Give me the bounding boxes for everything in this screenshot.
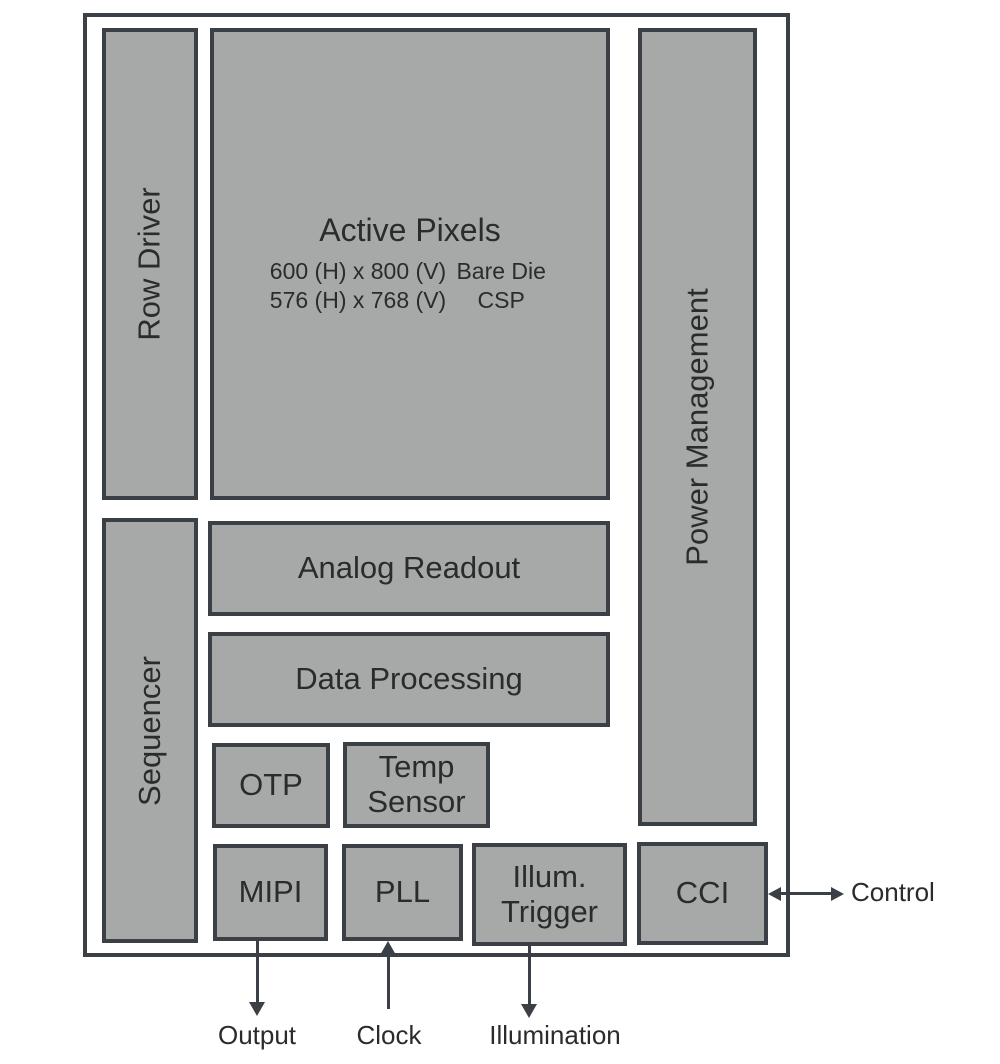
bare-die-resolution: 600 (H) x 800 (V) [270, 257, 446, 286]
illumination-trigger-label-line2: Trigger [501, 895, 598, 930]
active-pixels-title: Active Pixels [319, 213, 500, 248]
bare-die-package-label: Bare Die [452, 257, 550, 286]
control-arrowhead-left-icon [768, 887, 781, 901]
row-driver-block: Row Driver [102, 28, 198, 500]
temp-sensor-label-line1: Temp [379, 750, 455, 785]
cci-label: CCI [676, 876, 729, 911]
active-pixels-resolution-csp: 576 (H) x 768 (V) CSP [270, 286, 550, 315]
otp-block: OTP [212, 743, 330, 828]
sequencer-label: Sequencer [132, 656, 168, 806]
data-processing-label: Data Processing [295, 662, 522, 697]
output-arrow [256, 941, 259, 1003]
illumination-arrow [528, 946, 531, 1005]
output-signal-label: Output [218, 1021, 296, 1051]
temp-sensor-label-line2: Sensor [367, 785, 465, 820]
mipi-block: MIPI [213, 844, 328, 941]
power-management-label: Power Management [680, 288, 716, 565]
data-processing-block: Data Processing [208, 632, 610, 727]
control-signal-label: Control [851, 878, 935, 908]
active-pixels-block: Active Pixels 600 (H) x 800 (V) Bare Die… [210, 28, 610, 500]
pll-label: PLL [375, 875, 430, 910]
power-management-block: Power Management [638, 28, 757, 826]
sequencer-block: Sequencer [102, 518, 198, 943]
analog-readout-label: Analog Readout [298, 551, 520, 586]
output-arrowhead-icon [249, 1002, 265, 1016]
pll-block: PLL [342, 844, 463, 941]
cci-block: CCI [637, 842, 768, 945]
active-pixels-resolution-bare-die: 600 (H) x 800 (V) Bare Die [270, 257, 550, 286]
clock-arrow [387, 954, 390, 1009]
illumination-trigger-block: Illum. Trigger [472, 843, 627, 946]
mipi-label: MIPI [239, 875, 303, 910]
csp-resolution: 576 (H) x 768 (V) [270, 286, 446, 315]
row-driver-label: Row Driver [132, 187, 168, 340]
illumination-trigger-label-line1: Illum. [512, 860, 586, 895]
csp-package-label: CSP [452, 286, 550, 315]
otp-label: OTP [239, 768, 303, 803]
illumination-signal-label: Illumination [489, 1021, 621, 1051]
sensor-block-diagram: Row Driver Power Management Sequencer Ac… [0, 0, 1000, 1064]
clock-signal-label: Clock [356, 1021, 421, 1051]
analog-readout-block: Analog Readout [208, 521, 610, 616]
clock-arrowhead-icon [380, 941, 396, 955]
illumination-arrowhead-icon [521, 1004, 537, 1018]
control-arrowhead-right-icon [831, 887, 844, 901]
control-arrow [776, 892, 838, 895]
temp-sensor-block: Temp Sensor [343, 742, 490, 828]
